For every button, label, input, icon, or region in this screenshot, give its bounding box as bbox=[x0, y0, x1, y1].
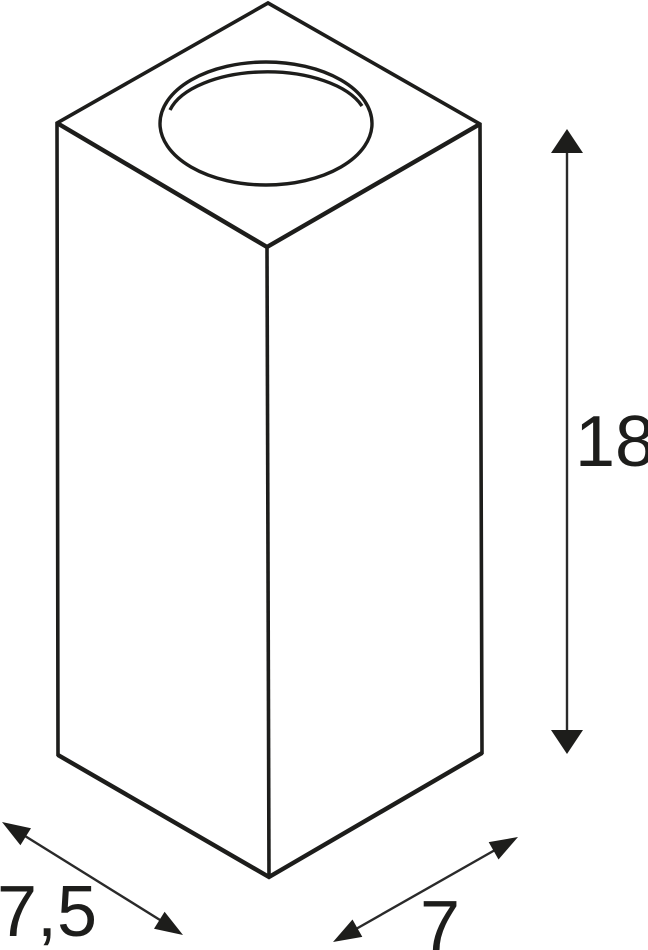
luminaire-body bbox=[57, 3, 482, 877]
width-dimension: 7 bbox=[333, 837, 518, 950]
arrowhead-upright-icon bbox=[489, 837, 518, 860]
arrowhead-upleft-icon bbox=[2, 822, 31, 845]
depth-dimension: 7,5 bbox=[0, 822, 183, 950]
arrowhead-downleft-icon bbox=[333, 920, 362, 943]
drawing-canvas: 18 7,5 7 bbox=[0, 0, 648, 950]
arrowhead-downright-icon bbox=[154, 912, 183, 935]
width-dimension-label: 7 bbox=[420, 887, 460, 950]
arrowhead-down-icon bbox=[551, 730, 583, 754]
depth-dimension-label: 7,5 bbox=[0, 872, 97, 950]
height-dimension-label: 18 bbox=[575, 402, 648, 482]
height-dimension: 18 bbox=[551, 129, 648, 754]
front-vertical-edge bbox=[267, 247, 269, 877]
dimension-drawing: 18 7,5 7 bbox=[0, 0, 648, 950]
arrowhead-up-icon bbox=[551, 129, 583, 153]
top-opening-outer bbox=[160, 62, 372, 185]
